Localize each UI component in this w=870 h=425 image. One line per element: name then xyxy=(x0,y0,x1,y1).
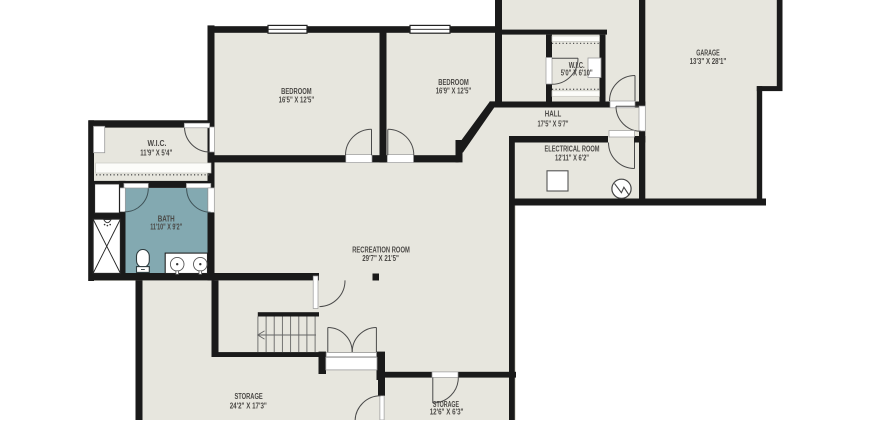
svg-text:16'5" X 12'5": 16'5" X 12'5" xyxy=(279,96,315,105)
svg-text:ELECTRICAL ROOM: ELECTRICAL ROOM xyxy=(545,144,600,153)
svg-text:HALL: HALL xyxy=(545,109,562,118)
svg-text:W.I.C.: W.I.C. xyxy=(148,139,167,148)
svg-text:16'9" X 12'5": 16'9" X 12'5" xyxy=(436,86,472,95)
svg-text:11'9" X 5'4": 11'9" X 5'4" xyxy=(140,149,172,158)
svg-text:5'0" X 6'10": 5'0" X 6'10" xyxy=(561,68,593,77)
svg-text:12'11" X 6'2": 12'11" X 6'2" xyxy=(555,154,589,163)
svg-text:12'6" X 6'3": 12'6" X 6'3" xyxy=(430,407,464,416)
svg-text:17'5" X 5'7": 17'5" X 5'7" xyxy=(538,119,569,128)
svg-text:24'2" X 17'3": 24'2" X 17'3" xyxy=(230,401,267,410)
svg-text:29'7" X 21'5": 29'7" X 21'5" xyxy=(362,254,399,263)
svg-text:13'3" X 28'1": 13'3" X 28'1" xyxy=(690,57,727,66)
svg-text:11'10" X 9'2": 11'10" X 9'2" xyxy=(150,222,182,231)
svg-text:STORAGE: STORAGE xyxy=(234,392,263,401)
